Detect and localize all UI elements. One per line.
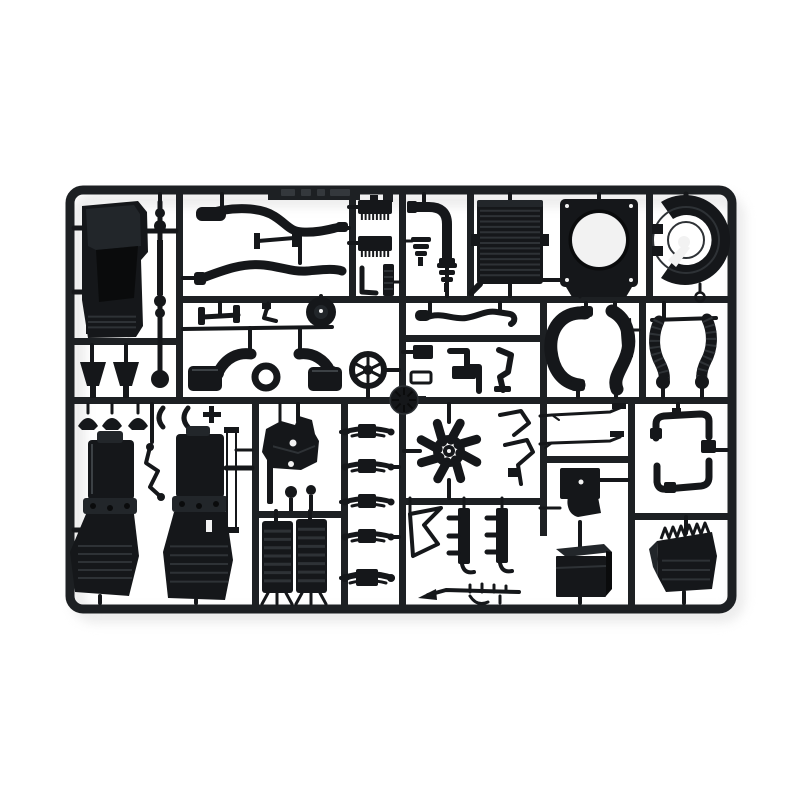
transmission-hole bbox=[290, 440, 297, 447]
exhaust-pipe-lower bbox=[200, 265, 342, 279]
tube-frame-clamp bbox=[664, 482, 676, 493]
engine-bolt bbox=[90, 503, 96, 509]
engine-cap bbox=[97, 431, 123, 443]
channel-strip-cap bbox=[224, 527, 239, 533]
transmission-lever bbox=[267, 442, 273, 504]
wiper-rod-flag bbox=[612, 403, 626, 409]
l-bracket bbox=[362, 268, 376, 293]
tube-frame bbox=[656, 414, 709, 489]
shift-linkage bbox=[146, 447, 161, 497]
bent-fitting bbox=[264, 308, 276, 321]
channel-strip-cap bbox=[224, 427, 239, 433]
elbow-pipe bbox=[219, 354, 251, 371]
leaf-spring-eye bbox=[388, 534, 395, 541]
cup-part bbox=[80, 362, 106, 386]
battery-box-side bbox=[606, 551, 612, 596]
knob-stem-part bbox=[289, 498, 293, 511]
air-horn-disc bbox=[439, 270, 455, 275]
finned-block-teeth bbox=[362, 251, 388, 257]
cross-bracket-end bbox=[292, 231, 298, 247]
open-frame-part bbox=[411, 372, 431, 383]
scene-group bbox=[70, 187, 738, 616]
drive-shaft-ball bbox=[151, 370, 169, 388]
tube-frame-clamp bbox=[650, 428, 662, 439]
ribbed-bracket-teeth bbox=[487, 518, 496, 552]
leaf-spring-clamp bbox=[358, 494, 376, 508]
cylinder-head-feet bbox=[262, 593, 292, 604]
product-photo bbox=[0, 0, 800, 800]
linkage-rod bbox=[500, 411, 529, 435]
wavy-pipe bbox=[425, 312, 514, 324]
fifth-wheel-tab bbox=[652, 246, 663, 256]
mount-plate-hole bbox=[579, 480, 584, 485]
air-horn-disc bbox=[415, 251, 427, 256]
spear-rail-tip bbox=[418, 589, 437, 600]
air-intake-tip bbox=[407, 201, 417, 213]
engine-block-half bbox=[88, 440, 134, 500]
fan-shroud-hole-dot bbox=[565, 204, 569, 208]
fan-shroud-hole-dot bbox=[629, 204, 633, 208]
fifth-wheel-tab bbox=[652, 224, 663, 234]
radiator-tab bbox=[543, 234, 549, 246]
cup-stem bbox=[123, 386, 129, 398]
drive-shaft-joint bbox=[155, 308, 165, 318]
drive-shaft-joint bbox=[154, 220, 166, 232]
air-duct-flange bbox=[579, 306, 593, 317]
finned-block-nub bbox=[370, 195, 378, 201]
fan-clutch-spokes bbox=[356, 358, 380, 382]
emboss-mark bbox=[281, 189, 295, 196]
ribbed-bracket-teeth bbox=[449, 518, 458, 553]
wiper-rod-flag bbox=[610, 431, 624, 437]
handlebar-end bbox=[198, 307, 205, 325]
drive-shaft-joint bbox=[154, 295, 166, 307]
frame-bar-hsub bbox=[403, 335, 547, 342]
air-duct-flange bbox=[571, 379, 585, 391]
finned-block bbox=[358, 236, 392, 251]
radiator-top-tank bbox=[477, 200, 543, 207]
air-horn-disc bbox=[437, 263, 457, 268]
air-horn-stem bbox=[444, 283, 449, 292]
handlebar-part bbox=[203, 315, 238, 317]
exhaust-tip bbox=[336, 222, 348, 232]
engine-glint bbox=[206, 520, 212, 532]
leaf-spring-clamp bbox=[356, 569, 378, 586]
leaf-spring-eye bbox=[341, 574, 349, 582]
engine-bolt bbox=[213, 501, 219, 507]
cross-bracket bbox=[258, 238, 294, 241]
ribbed-strip bbox=[383, 264, 394, 296]
cab-roof-facet bbox=[86, 205, 141, 250]
air-duct bbox=[551, 313, 585, 385]
sprue-gate bbox=[540, 415, 552, 416]
drive-shaft-body bbox=[157, 240, 163, 295]
frame-bar-h4 bbox=[252, 511, 348, 518]
air-horn-disc bbox=[411, 237, 431, 242]
frame-bar-v2 bbox=[349, 194, 356, 300]
emboss-mark bbox=[330, 189, 350, 196]
handlebar-end bbox=[233, 305, 240, 323]
runner-bar bbox=[183, 327, 332, 329]
shift-linkage-joint bbox=[146, 443, 154, 451]
radiator-fan-dot bbox=[447, 449, 451, 453]
wiper-rod bbox=[552, 407, 622, 415]
cup-part bbox=[113, 362, 139, 386]
corrugated-hose-cap bbox=[695, 375, 709, 389]
step-bracket bbox=[499, 350, 511, 390]
leaf-spring-eye bbox=[388, 464, 395, 471]
radiator-tab bbox=[471, 234, 477, 246]
battery-box-top bbox=[556, 544, 612, 557]
frame-bar-h6 bbox=[628, 513, 732, 520]
cab-window-inset bbox=[96, 246, 138, 302]
leaf-spring-clamp bbox=[358, 529, 376, 543]
step-bracket-foot bbox=[494, 386, 511, 392]
engine-block-half bbox=[176, 434, 224, 498]
frame-bar-h5 bbox=[403, 498, 547, 505]
finned-block-teeth bbox=[362, 214, 388, 220]
cylinder-head-ribs bbox=[298, 529, 325, 580]
exhaust-flare bbox=[194, 272, 206, 285]
engine-bolt bbox=[107, 505, 113, 511]
linkage-block bbox=[508, 468, 519, 477]
clamp-part bbox=[159, 408, 163, 427]
cylinder-head-feet bbox=[296, 593, 326, 604]
mudguard-arch bbox=[128, 418, 148, 430]
cylinder-head-ribs bbox=[264, 531, 291, 581]
finned-block bbox=[358, 200, 392, 214]
tube-frame-clamp bbox=[701, 440, 716, 453]
leaf-spring-eye bbox=[342, 534, 349, 541]
fan-shroud-hole-dot bbox=[565, 278, 569, 282]
ribbed-bracket-foot bbox=[462, 564, 474, 572]
cup-stem bbox=[90, 386, 96, 398]
mudguard-arch bbox=[102, 418, 122, 430]
leaf-spring-eye bbox=[388, 429, 395, 436]
brake-drum-hole bbox=[319, 309, 323, 313]
wiper-rod bbox=[552, 437, 620, 443]
frame-bar-v4 bbox=[467, 194, 474, 300]
leaf-spring-eye bbox=[387, 574, 395, 582]
emboss-mark bbox=[317, 189, 325, 196]
shift-linkage-joint bbox=[157, 493, 165, 501]
step-box bbox=[657, 532, 717, 592]
engine-bolt bbox=[196, 503, 202, 509]
air-horn-disc bbox=[413, 244, 429, 249]
knob-part bbox=[285, 486, 297, 498]
frame-bar-h1 bbox=[176, 296, 732, 303]
emboss-mark bbox=[301, 189, 311, 196]
battery-box bbox=[556, 556, 606, 597]
ring-part bbox=[255, 366, 277, 388]
knob-part bbox=[306, 485, 316, 495]
knob-stem-part bbox=[309, 495, 313, 511]
leaf-spring-clamp bbox=[358, 424, 376, 438]
leaf-spring-eye bbox=[342, 464, 349, 471]
sprue-svg bbox=[0, 0, 800, 800]
leaf-spring-eye bbox=[342, 429, 349, 436]
channel-strip bbox=[227, 430, 236, 528]
small-block bbox=[413, 345, 433, 359]
mount-plate-lobe bbox=[567, 497, 601, 517]
ribbed-bracket-foot bbox=[500, 563, 512, 571]
cross-bracket-end bbox=[254, 233, 260, 249]
air-horn-disc bbox=[441, 277, 453, 282]
drive-shaft-joint bbox=[155, 208, 165, 218]
leaf-spring-clamp bbox=[358, 459, 376, 473]
frame-bar-v8 bbox=[252, 397, 259, 605]
leaf-spring-eye bbox=[342, 499, 349, 506]
step-box-wing bbox=[649, 541, 658, 577]
engine-cap bbox=[186, 426, 210, 436]
engine-bolt bbox=[124, 503, 130, 509]
corrugated-hose-cap bbox=[656, 375, 670, 389]
tube-frame-fitting bbox=[672, 408, 681, 418]
exhaust-resonator bbox=[196, 207, 226, 221]
frame-bar-v7b bbox=[628, 397, 635, 605]
engine-bolt bbox=[179, 501, 185, 507]
air-horn-stem bbox=[418, 257, 423, 266]
frame-bar-v7a bbox=[639, 296, 646, 401]
wavy-pipe-bulge bbox=[415, 310, 431, 321]
spear-rail-tail bbox=[470, 596, 488, 604]
fin-bracket bbox=[410, 508, 441, 556]
linkage-rod bbox=[505, 440, 533, 484]
frame-bar-v5 bbox=[646, 194, 653, 300]
fan-shroud-hole bbox=[572, 213, 626, 267]
bent-fitting-flange bbox=[262, 303, 271, 309]
transmission-hole bbox=[288, 461, 294, 467]
frame-bar-h3 bbox=[540, 456, 635, 463]
fan-shroud-hole-dot bbox=[629, 278, 633, 282]
step-bracket-plate bbox=[452, 366, 476, 379]
clamp-part bbox=[184, 408, 188, 427]
leaf-spring-eye bbox=[388, 499, 395, 506]
tee-part bbox=[209, 406, 214, 423]
fan-shroud-skirt bbox=[566, 287, 632, 297]
